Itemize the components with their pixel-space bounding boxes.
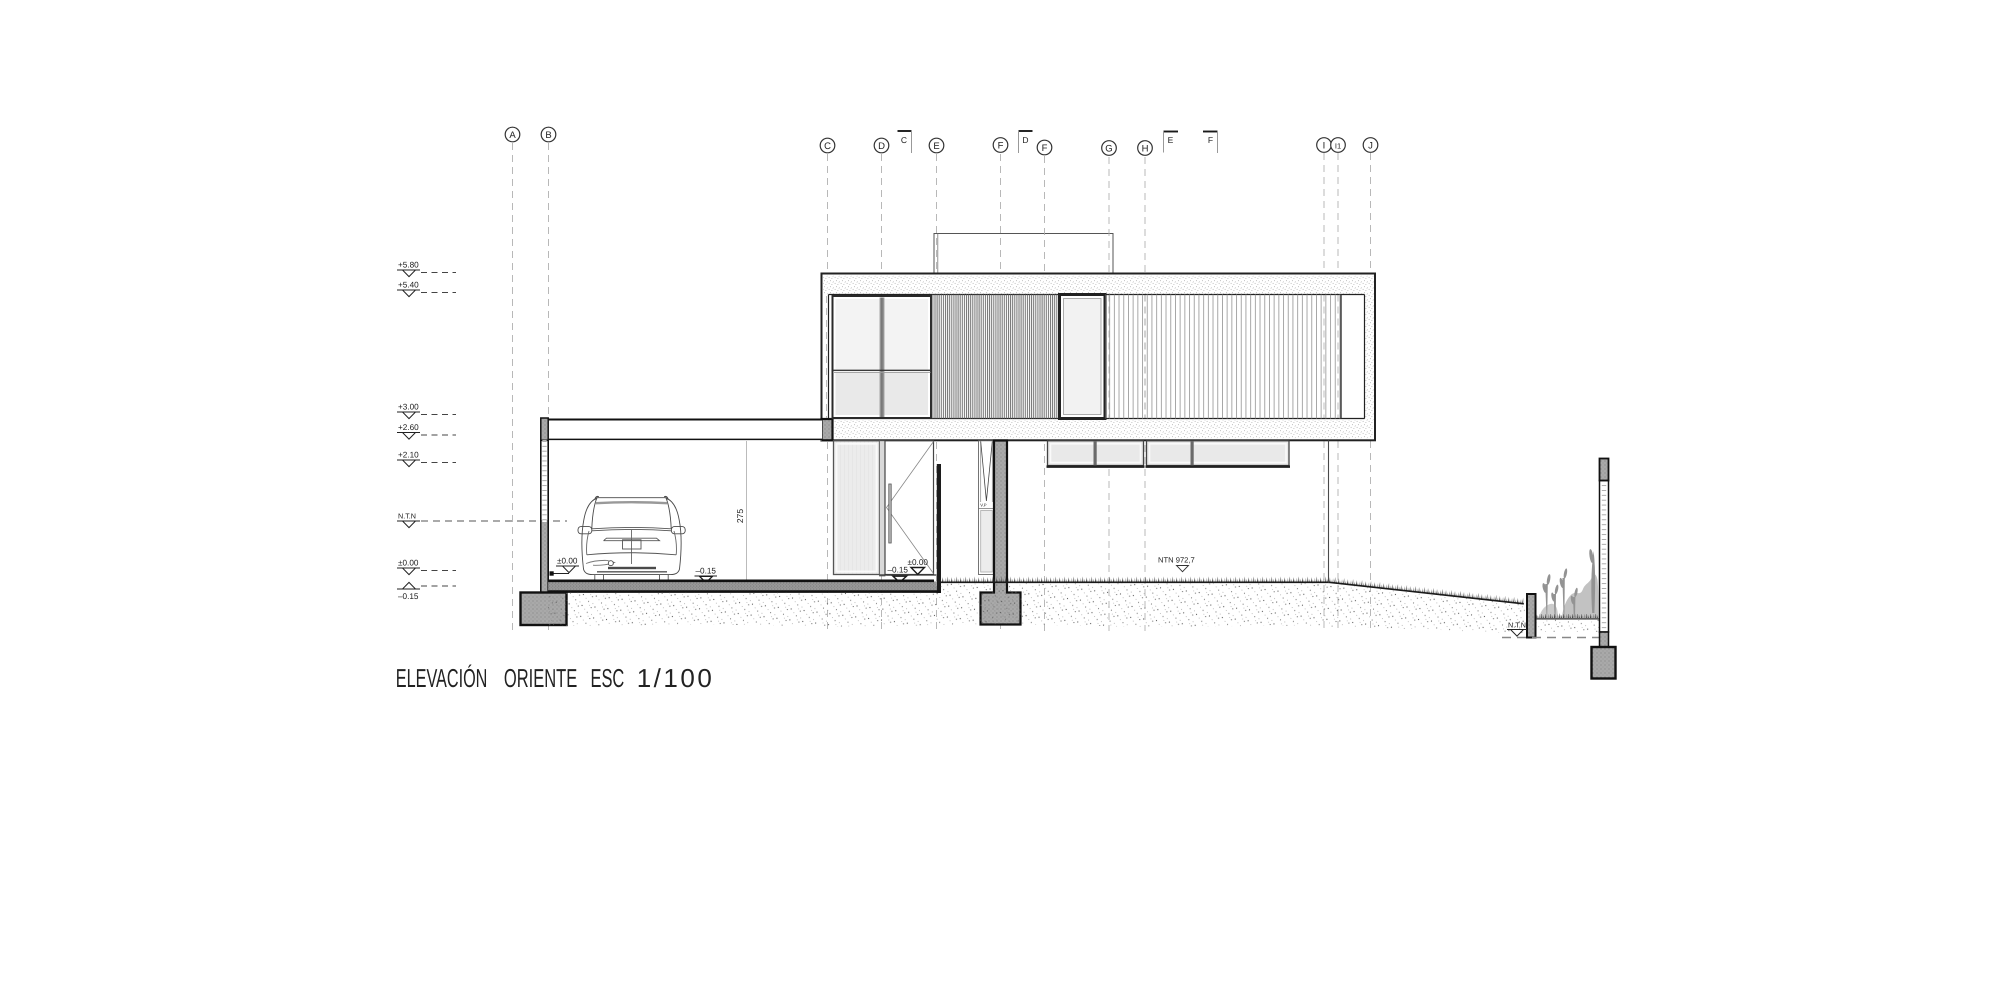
svg-text:F: F: [1208, 135, 1213, 145]
svg-text:ELEVACIÓN: ELEVACIÓN: [396, 663, 488, 693]
svg-text:+2.60: +2.60: [398, 423, 419, 432]
svg-text:I: I: [1323, 141, 1326, 152]
svg-text:ORIENTE: ORIENTE: [504, 663, 577, 693]
svg-text:±0.00: ±0.00: [398, 559, 419, 568]
svg-text:A: A: [509, 130, 516, 141]
svg-text:J: J: [1368, 141, 1373, 152]
svg-text:I1: I1: [1335, 142, 1341, 151]
svg-text:F: F: [998, 141, 1004, 152]
svg-text:F: F: [1042, 143, 1048, 154]
svg-text:+3.00: +3.00: [398, 403, 419, 412]
svg-text:+5.40: +5.40: [398, 281, 419, 290]
svg-text:C: C: [824, 141, 831, 152]
svg-text:D: D: [1022, 135, 1028, 145]
svg-text:+2.10: +2.10: [398, 451, 419, 460]
svg-text:275: 275: [735, 509, 745, 523]
svg-text:N.T.N: N.T.N: [398, 512, 416, 521]
svg-text:+5.80: +5.80: [398, 261, 419, 270]
svg-text:1/100: 1/100: [637, 663, 712, 693]
svg-text:D: D: [878, 141, 885, 152]
svg-text:V.P: V.P: [980, 503, 987, 508]
svg-text:G: G: [1105, 144, 1112, 155]
svg-text:±0.00: ±0.00: [908, 558, 929, 567]
svg-text:–0.15: –0.15: [888, 566, 909, 575]
svg-text:N.T.N: N.T.N: [1508, 621, 1526, 630]
svg-text:C: C: [901, 135, 907, 145]
svg-text:±0.00: ±0.00: [557, 557, 578, 566]
svg-text:–0.15: –0.15: [398, 592, 419, 601]
svg-text:E: E: [933, 141, 939, 152]
svg-text:ESC: ESC: [591, 663, 625, 693]
svg-text:E: E: [1168, 135, 1174, 145]
svg-text:H: H: [1142, 144, 1149, 155]
svg-text:B: B: [545, 130, 551, 141]
svg-text:NTN 972,7: NTN 972,7: [1158, 556, 1195, 565]
svg-text:–0.15: –0.15: [696, 567, 717, 576]
